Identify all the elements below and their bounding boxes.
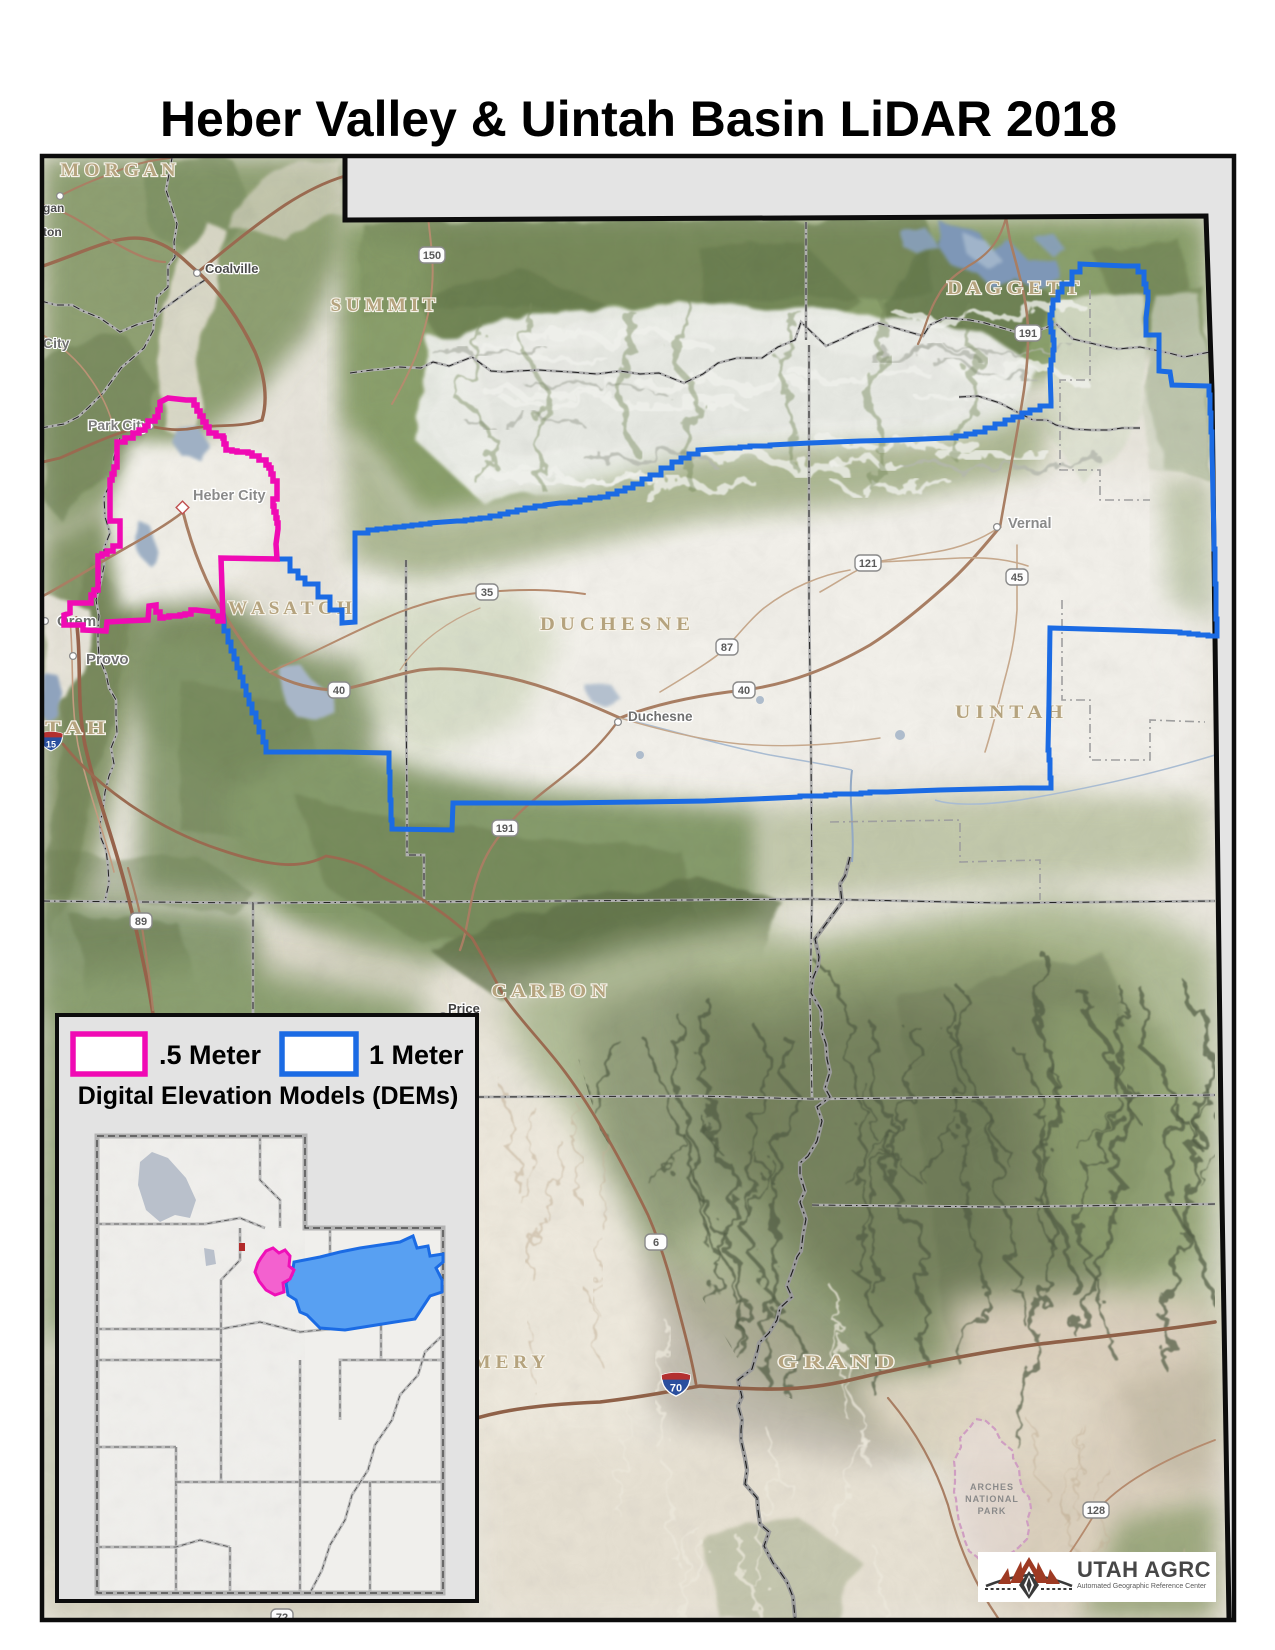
- svg-text:ton: ton: [43, 225, 62, 239]
- svg-text:40: 40: [333, 685, 345, 697]
- svg-text:S U M M I T: S U M M I T: [331, 295, 436, 316]
- svg-text:C A R B O N: C A R B O N: [492, 981, 607, 1002]
- svg-text:City: City: [43, 335, 70, 351]
- svg-text:Vernal: Vernal: [1008, 516, 1052, 532]
- svg-text:150: 150: [423, 250, 441, 262]
- svg-text:.5 Meter: .5 Meter: [159, 1040, 262, 1070]
- svg-text:Automated Geographic Reference: Automated Geographic Reference Center: [1077, 1583, 1207, 1590]
- svg-text:Heber Valley & Uintah Basin Li: Heber Valley & Uintah Basin LiDAR 2018: [160, 90, 1117, 147]
- svg-text:6: 6: [653, 1237, 659, 1249]
- svg-text:M O R G A N: M O R G A N: [61, 160, 176, 181]
- svg-text:Provo: Provo: [86, 651, 129, 668]
- svg-text:PARK: PARK: [978, 1506, 1007, 1516]
- svg-text:Digital Elevation Models (DEMs: Digital Elevation Models (DEMs): [78, 1082, 459, 1110]
- svg-text:87: 87: [721, 642, 733, 654]
- svg-text:Duchesne: Duchesne: [628, 709, 693, 724]
- svg-text:191: 191: [1019, 328, 1037, 340]
- svg-text:89: 89: [135, 916, 147, 928]
- svg-text:Heber City: Heber City: [193, 488, 266, 504]
- svg-text:gan: gan: [43, 201, 64, 215]
- svg-text:D U C H E S N E: D U C H E S N E: [540, 614, 690, 635]
- svg-text:1 Meter: 1 Meter: [369, 1040, 464, 1070]
- svg-text:70: 70: [670, 1383, 682, 1395]
- svg-text:15: 15: [46, 739, 56, 749]
- svg-text:40: 40: [738, 685, 750, 697]
- svg-text:NATIONAL: NATIONAL: [965, 1494, 1019, 1504]
- svg-text:UTAH AGRC: UTAH AGRC: [1077, 1557, 1211, 1582]
- svg-text:35: 35: [481, 587, 493, 599]
- svg-text:121: 121: [859, 558, 877, 570]
- svg-text:191: 191: [496, 823, 514, 835]
- svg-text:ARCHES: ARCHES: [970, 1482, 1014, 1492]
- svg-text:G R A N D: G R A N D: [778, 1352, 895, 1373]
- svg-text:128: 128: [1087, 1505, 1105, 1517]
- svg-text:Coalville: Coalville: [205, 261, 258, 276]
- svg-text:45: 45: [1011, 572, 1023, 584]
